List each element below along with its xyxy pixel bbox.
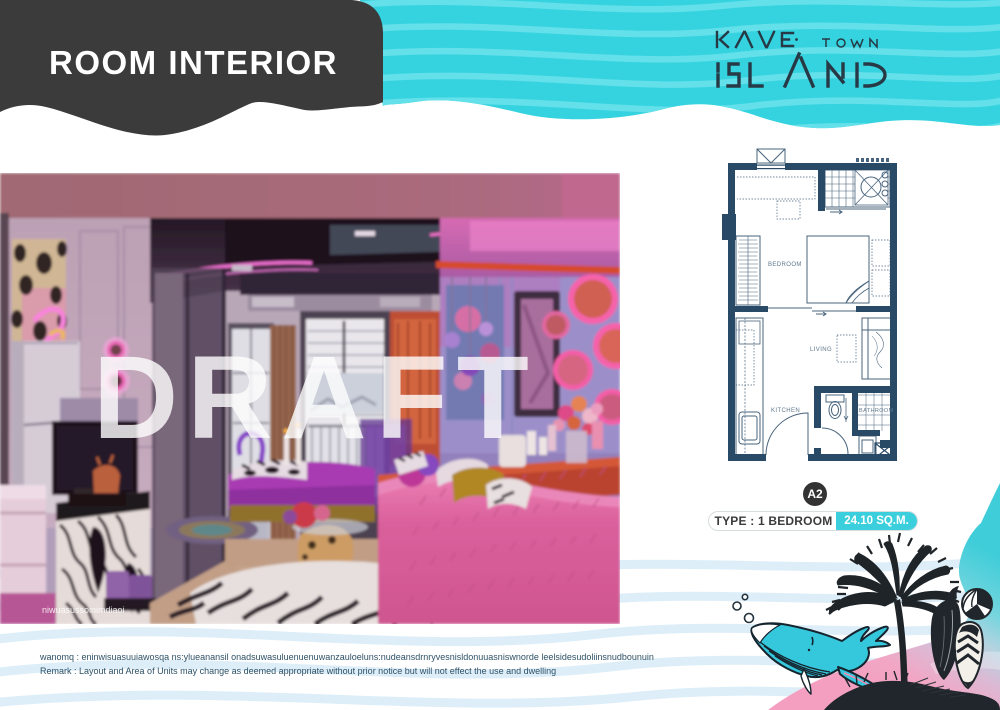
svg-text:LIVING: LIVING [810, 347, 832, 353]
svg-text:niwuasussoinimdiaoi: niwuasussoinimdiaoi [42, 605, 125, 615]
svg-text:DRAFT: DRAFT [93, 332, 538, 464]
svg-text:BEDROOM: BEDROOM [768, 262, 802, 268]
